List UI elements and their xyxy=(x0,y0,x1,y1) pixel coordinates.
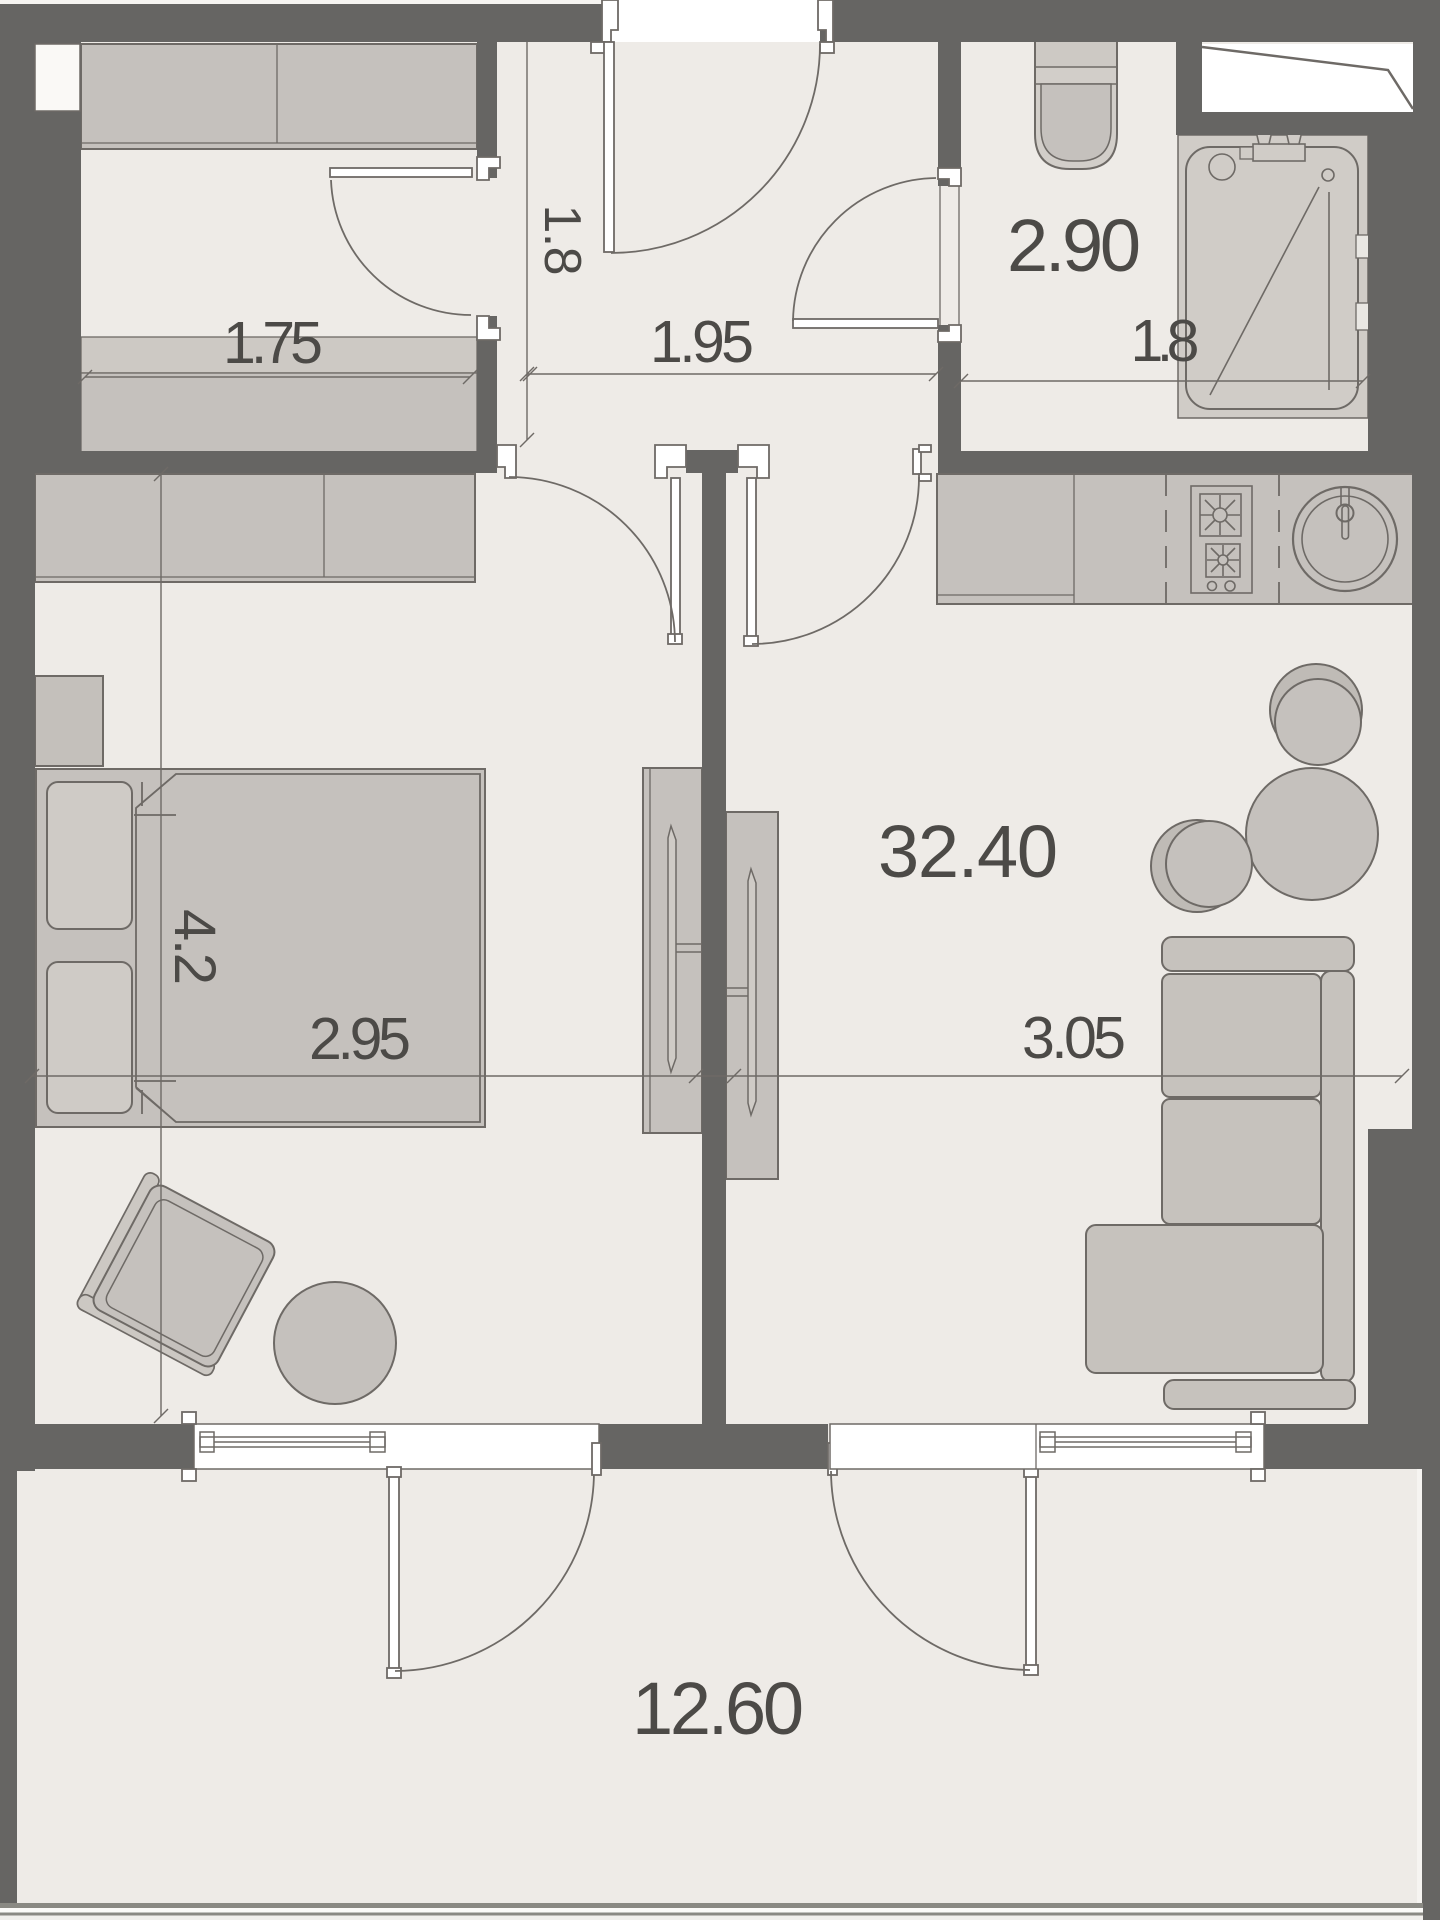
svg-text:2.90: 2.90 xyxy=(1007,204,1141,287)
svg-text:2.95: 2.95 xyxy=(309,1006,411,1072)
svg-text:1.8: 1.8 xyxy=(1131,308,1200,374)
svg-text:12.60: 12.60 xyxy=(632,1667,804,1750)
svg-text:1.75: 1.75 xyxy=(223,310,323,376)
svg-text:1.95: 1.95 xyxy=(650,309,754,375)
svg-text:4.2: 4.2 xyxy=(162,909,227,985)
svg-text:3.05: 3.05 xyxy=(1022,1005,1126,1071)
svg-text:32.40: 32.40 xyxy=(878,810,1058,893)
svg-text:1.8: 1.8 xyxy=(533,205,591,276)
